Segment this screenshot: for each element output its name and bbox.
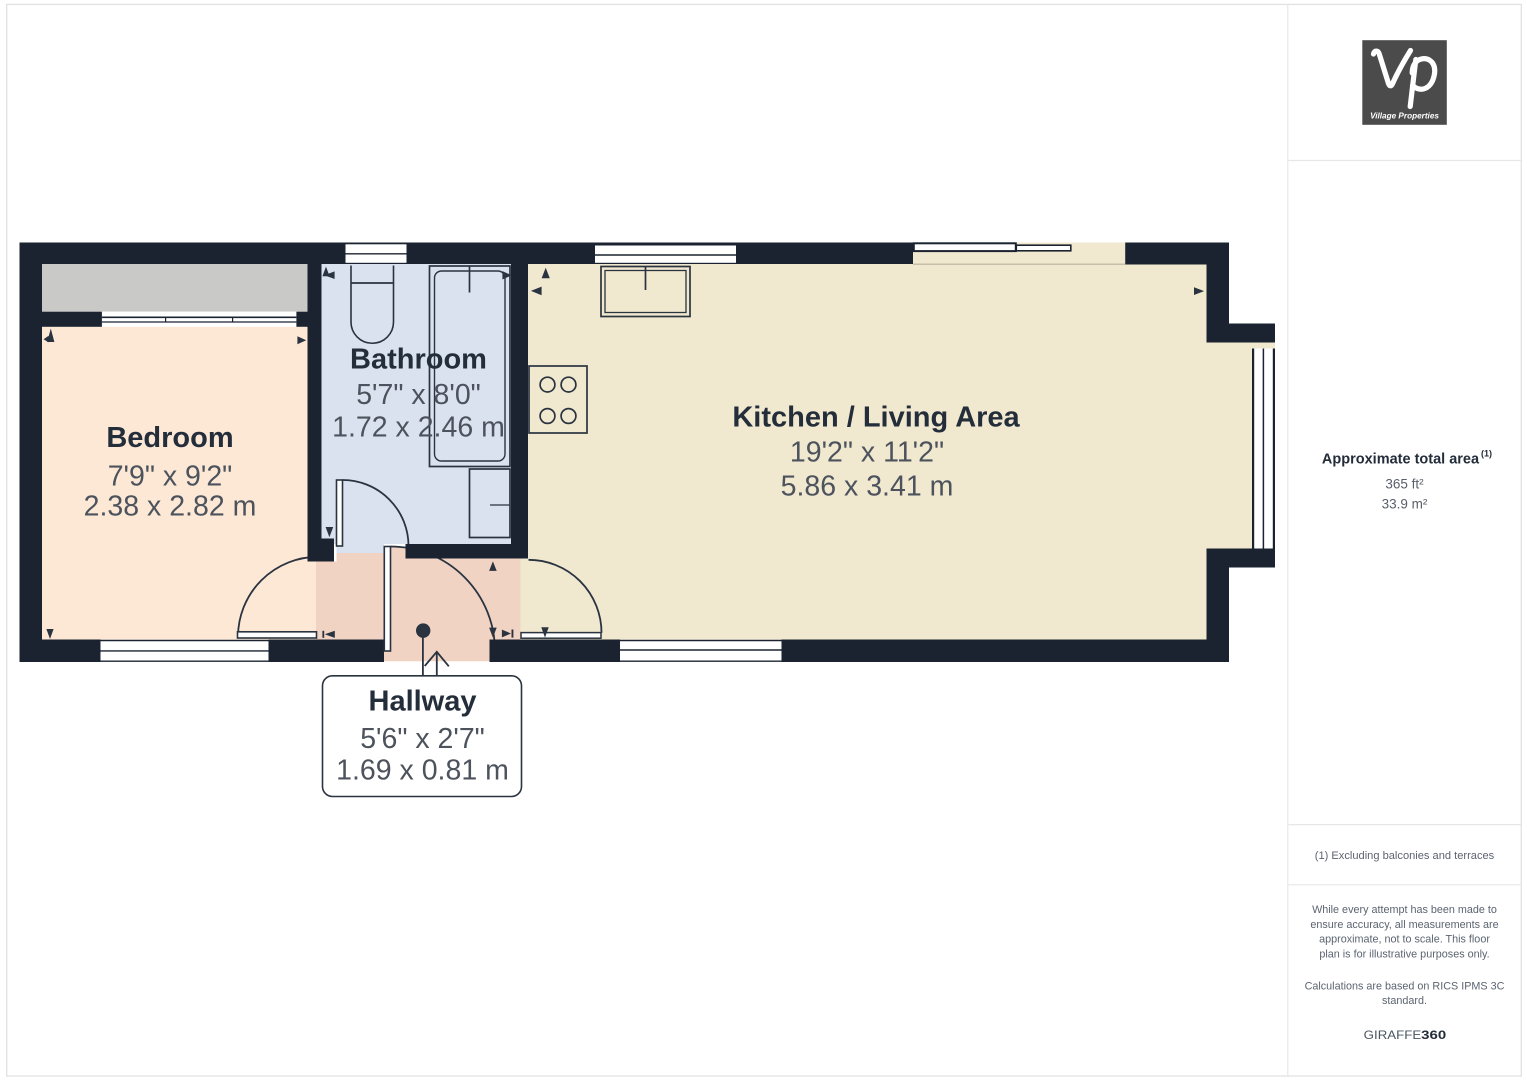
svg-text:1.69 x 0.81 m: 1.69 x 0.81 m	[336, 755, 509, 787]
svg-text:5'6" x 2'7": 5'6" x 2'7"	[360, 723, 485, 755]
svg-text:While every attempt has been m: While every attempt has been made to	[1312, 904, 1497, 916]
svg-text:(1): (1)	[1481, 449, 1492, 459]
svg-text:19'2" x 11'2": 19'2" x 11'2"	[790, 437, 944, 469]
svg-text:365 ft²: 365 ft²	[1385, 477, 1424, 492]
svg-text:5'7" x 8'0": 5'7" x 8'0"	[356, 379, 481, 411]
svg-text:Kitchen / Living Area: Kitchen / Living Area	[732, 402, 1020, 434]
svg-text:standard.: standard.	[1382, 995, 1427, 1007]
svg-text:plan is for illustrative purpo: plan is for illustrative purposes only.	[1319, 949, 1489, 961]
svg-text:Hallway: Hallway	[369, 686, 477, 718]
svg-text:Village Properties: Village Properties	[1370, 112, 1439, 121]
svg-text:Bathroom: Bathroom	[350, 344, 487, 376]
svg-text:approximate, not to scale. Thi: approximate, not to scale. This floor	[1319, 934, 1490, 946]
svg-text:GIRAFFE360: GIRAFFE360	[1364, 1028, 1447, 1042]
svg-text:Approximate total area: Approximate total area	[1322, 452, 1480, 468]
svg-text:(1) Excluding balconies and te: (1) Excluding balconies and terraces	[1315, 850, 1495, 862]
svg-text:ensure accuracy, all measureme: ensure accuracy, all measurements are	[1310, 919, 1498, 931]
svg-text:7'9" x 9'2": 7'9" x 9'2"	[108, 461, 233, 493]
svg-text:Bedroom: Bedroom	[106, 422, 233, 454]
svg-text:1.72 x 2.46 m: 1.72 x 2.46 m	[332, 412, 505, 444]
svg-text:5.86 x 3.41 m: 5.86 x 3.41 m	[781, 471, 954, 503]
svg-text:33.9 m²: 33.9 m²	[1382, 497, 1428, 512]
svg-text:Calculations are based on RICS: Calculations are based on RICS IPMS 3C	[1305, 980, 1505, 992]
svg-text:2.38 x 2.82 m: 2.38 x 2.82 m	[84, 491, 257, 523]
